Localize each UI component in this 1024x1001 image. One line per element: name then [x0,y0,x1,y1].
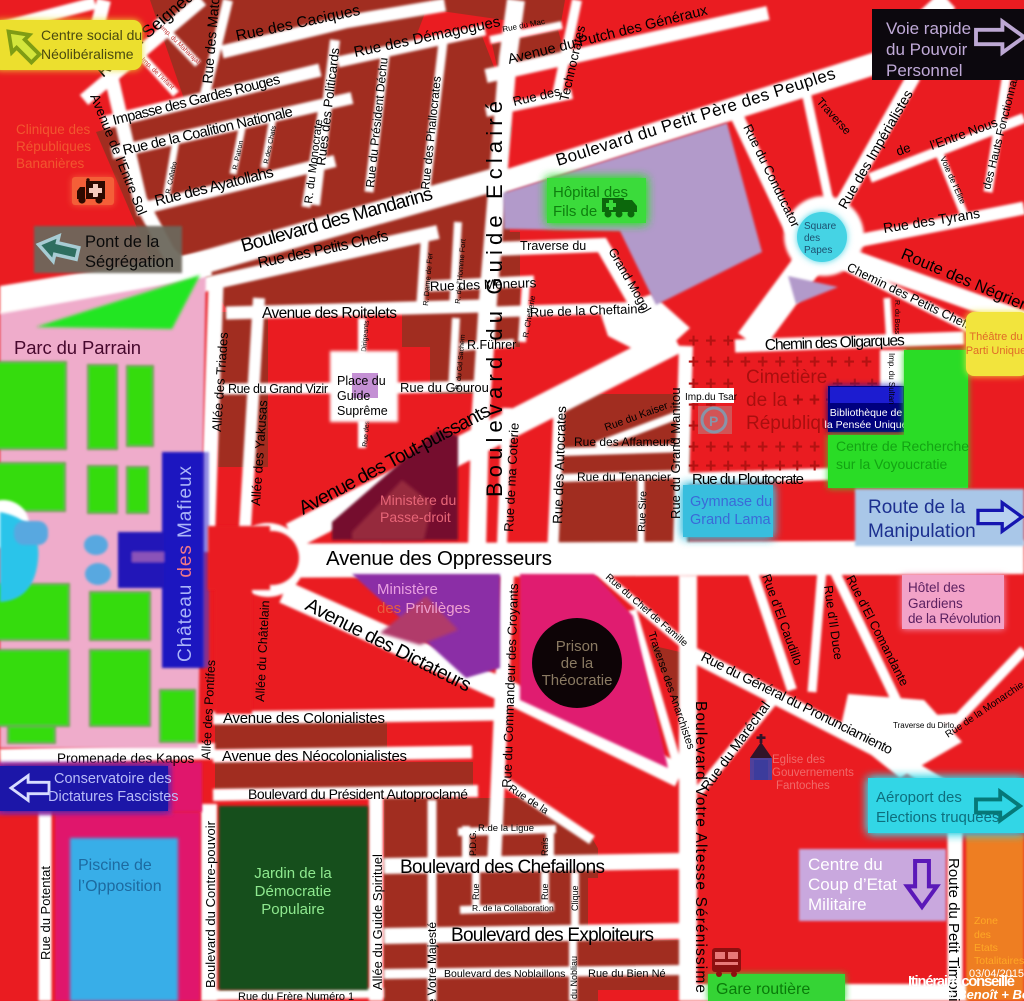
svg-text:Rue: Rue [540,883,550,900]
svg-text:Dictatures Fascistes: Dictatures Fascistes [48,789,179,805]
svg-text:Populaire: Populaire [261,901,324,918]
svg-text:Coup d’Etat: Coup d’Etat [808,875,897,894]
svg-text:Avenue des Néocolonialistes: Avenue des Néocolonialistes [222,748,407,765]
svg-text:Boulevard des Chefaillons: Boulevard des Chefaillons [400,857,605,878]
svg-text:des: des [974,929,991,941]
svg-text:R. de la Collaboration: R. de la Collaboration [472,903,554,913]
svg-text:Avenue des Roitelets: Avenue des Roitelets [262,305,397,322]
svg-text:Rue du Potentat: Rue du Potentat [38,866,53,960]
svg-text:l’Opposition: l’Opposition [78,878,162,895]
svg-text:Gardiens: Gardiens [908,596,963,611]
svg-text:+++: +++ [688,331,740,352]
svg-text:ue Votre Majesté: ue Votre Majesté [425,922,439,1001]
svg-text:Rue du Gourou: Rue du Gourou [400,380,489,395]
svg-text:Avenue des Oppresseurs: Avenue des Oppresseurs [326,547,552,570]
svg-text:R. du Boss: R. du Boss [893,300,900,335]
svg-text:Personnel: Personnel [886,61,963,80]
svg-text:Rue Sire: Rue Sire [636,491,649,532]
svg-text:Néolibéralisme: Néolibéralisme [41,46,134,62]
svg-text:Passe-droit: Passe-droit [380,509,451,525]
svg-text:Guide: Guide [337,389,370,403]
svg-text:Conservatoire des: Conservatoire des [54,771,172,787]
svg-text:Traverse du: Traverse du [520,239,586,253]
svg-text:Rue du Grand Manitou: Rue du Grand Manitou [668,387,683,519]
svg-text:Cimetière: Cimetière [746,367,827,388]
svg-text:Etats: Etats [974,942,998,954]
svg-text:Traverse du Dirlo: Traverse du Dirlo [893,721,955,730]
svg-text:Boulevard du Président Autopro: Boulevard du Président Autoproclamé [248,786,468,802]
svg-text:Rue: Rue [471,883,481,900]
svg-text:Imp. du Sultan: Imp. du Sultan [887,353,896,405]
svg-text:R.de la Ligue: R.de la Ligue [478,823,534,834]
svg-text:Rue du Bien Né: Rue du Bien Né [588,968,666,980]
svg-text:Imp.du Tsar: Imp.du Tsar [685,392,738,403]
svg-text:Jardin de la: Jardin de la [254,865,332,882]
svg-text:Gouvernements: Gouvernements [772,767,854,779]
svg-text:Zone: Zone [974,915,998,927]
svg-text:des: des [804,233,820,244]
svg-text:sur la Voyoucratie: sur la Voyoucratie [836,456,947,472]
svg-text:Théâtre du: Théâtre du [969,331,1022,343]
svg-text:Piscine de: Piscine de [78,857,152,874]
svg-text:Fantoches: Fantoches [776,780,830,792]
svg-text:la Pensée Unique: la Pensée Unique [825,419,908,431]
svg-text:Boulevard des Exploiteurs: Boulevard des Exploiteurs [451,925,654,946]
svg-text:Boulevard du Contre-pouvoir: Boulevard du Contre-pouvoir [203,820,218,988]
svg-text:Gymnase du: Gymnase du [690,494,772,510]
svg-text:de la Révolution: de la Révolution [908,611,1001,626]
svg-text:Square: Square [804,221,837,232]
svg-text:Centre de Recherche: Centre de Recherche [836,438,969,454]
svg-text:Pont de la: Pont de la [85,233,160,251]
svg-text:Ministère du: Ministère du [380,492,456,508]
svg-text:Centre social du: Centre social du [41,27,142,43]
svg-text:Rue du Grand Vizir: Rue du Grand Vizir [228,382,328,396]
svg-text:P.D.G.: P.D.G. [468,830,478,856]
svg-text:Aéroport des: Aéroport des [876,789,962,806]
svg-text:Totalitaires: Totalitaires [974,955,1024,967]
svg-text:Gare routière: Gare routière [716,981,810,998]
svg-text:Boulevard des Noblaillons: Boulevard des Noblaillons [444,968,565,980]
svg-text:Eglise des: Eglise des [772,754,825,766]
svg-text:Théocratie: Théocratie [542,672,613,689]
svg-text:P: P [709,413,718,429]
svg-text:Allée du Guide Spirituel: Allée du Guide Spirituel [370,854,385,990]
svg-text:Hôtel des: Hôtel des [908,580,965,595]
svg-text:Parc du Parrain: Parc du Parrain [14,337,141,358]
svg-text:Militaire: Militaire [808,895,867,914]
svg-text:Ministère: Ministère [377,581,438,598]
svg-text:Bibliothèque de: Bibliothèque de [830,407,903,419]
svg-text:Grand Lama: Grand Lama [690,512,772,528]
svg-text:des Privilèges: des Privilèges [377,600,470,617]
svg-text:Voie rapide: Voie rapide [886,19,971,38]
svg-text:Route de la: Route de la [868,497,966,518]
svg-text:de la + + +: de la + + + [746,390,836,411]
svg-text:Papes: Papes [804,245,832,256]
svg-text:Clique: Clique [570,885,580,911]
svg-text:Raïs: Raïs [540,837,550,856]
svg-text:Suprême: Suprême [337,404,388,418]
svg-text:++++++++: ++++++++ [688,437,826,458]
svg-text:Républiques: Républiques [16,139,91,154]
svg-text:Avenue des Colonialistes: Avenue des Colonialistes [223,710,385,727]
svg-text:Rue du Tenancier: Rue du Tenancier [577,470,671,484]
svg-text:Prison: Prison [556,638,599,655]
svg-text:Place du: Place du [337,374,386,388]
svg-text:du Nobliau: du Nobliau [569,956,579,999]
svg-text:Clinique des: Clinique des [16,122,91,137]
svg-text:Rue du Frère Numéro 1: Rue du Frère Numéro 1 [238,991,354,1001]
svg-text:Manipulation: Manipulation [868,521,976,542]
svg-text:© Benoît + Bo: © Benoît + Bo [944,987,1024,1001]
svg-text:Démocratie: Démocratie [255,883,332,900]
svg-text:Rue des Affameurs: Rue des Affameurs [574,435,676,449]
svg-text:Parti Unique: Parti Unique [966,345,1024,357]
svg-text:Château des Mafieux: Château des Mafieux [175,466,196,663]
svg-text:de la: de la [561,655,594,672]
svg-text:Bananières: Bananières [16,156,85,171]
svg-text:du Pouvoir: du Pouvoir [886,40,968,59]
svg-text:R.Führer: R.Führer [467,338,516,352]
svg-text:Rue du Ploutocrate: Rue du Ploutocrate [692,471,804,488]
svg-text:Fils de: Fils de [553,203,597,220]
svg-text:Ségrégation: Ségrégation [85,253,174,271]
svg-text:Centre du: Centre du [808,855,883,874]
